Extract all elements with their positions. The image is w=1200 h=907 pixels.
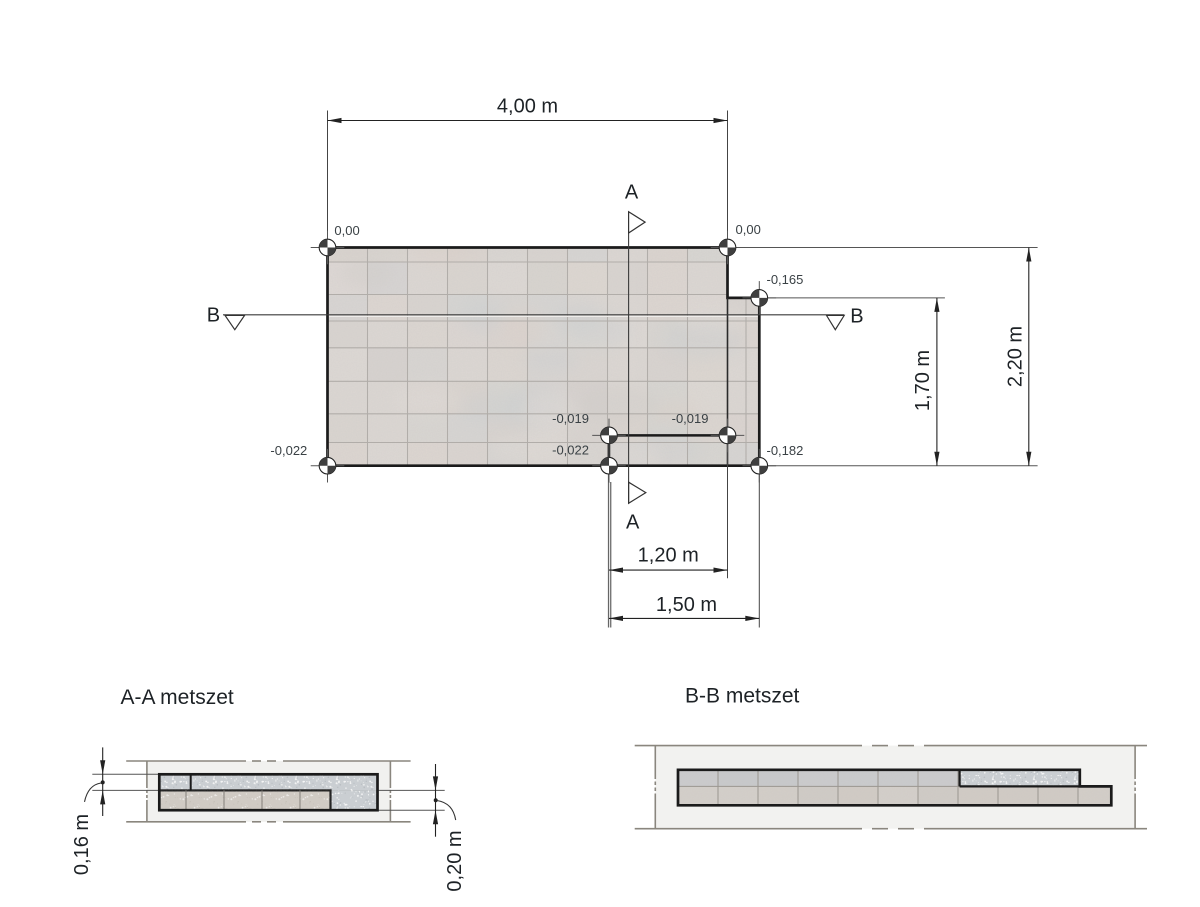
svg-text:B: B	[850, 305, 863, 327]
svg-text:1,20 m: 1,20 m	[638, 545, 699, 567]
svg-text:A: A	[625, 182, 639, 204]
svg-text:2,20 m: 2,20 m	[1005, 326, 1027, 387]
svg-text:0,16 m: 0,16 m	[71, 814, 93, 875]
svg-text:-0,022: -0,022	[552, 443, 589, 458]
svg-text:A: A	[626, 512, 640, 534]
svg-text:-0,182: -0,182	[767, 443, 804, 458]
svg-text:0,00: 0,00	[736, 222, 761, 237]
svg-text:4,00 m: 4,00 m	[497, 96, 558, 118]
svg-text:B-B metszet: B-B metszet	[685, 685, 800, 708]
svg-text:0,20 m: 0,20 m	[444, 830, 466, 891]
svg-text:1,70 m: 1,70 m	[912, 350, 934, 411]
svg-text:-0,165: -0,165	[767, 272, 804, 287]
svg-text:-0,022: -0,022	[270, 443, 307, 458]
svg-text:1,50 m: 1,50 m	[656, 594, 717, 616]
svg-text:0,00: 0,00	[334, 223, 359, 238]
svg-text:-0,019: -0,019	[672, 411, 709, 426]
svg-text:A-A metszet: A-A metszet	[121, 686, 234, 709]
svg-text:B: B	[207, 304, 220, 326]
svg-text:-0,019: -0,019	[552, 411, 589, 426]
